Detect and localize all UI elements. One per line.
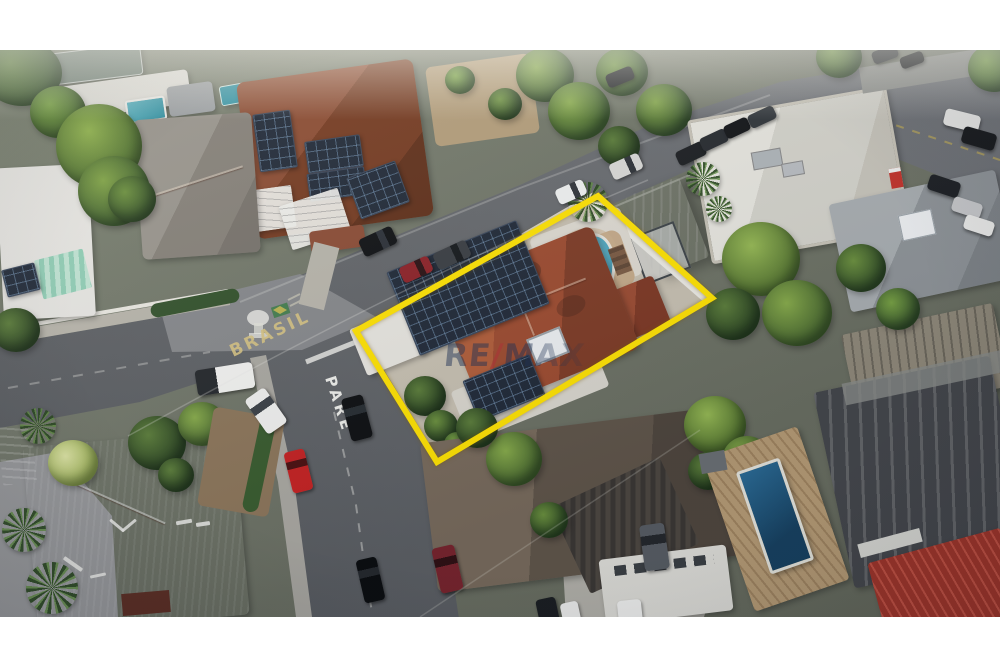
letterbox-bottom <box>0 617 1000 667</box>
power-line <box>420 430 700 617</box>
aerial-photo-stage: PARE BRASIL <box>0 0 1000 667</box>
highlight-overlay <box>0 50 1000 617</box>
property-highlight-outline <box>356 196 712 462</box>
watermark-text: MAX <box>501 338 587 374</box>
watermark-text: RE <box>442 338 493 374</box>
photo-area: PARE BRASIL <box>0 50 1000 617</box>
remax-watermark: RE/MAX <box>442 338 587 374</box>
power-line <box>128 180 648 436</box>
letterbox-top <box>0 0 1000 50</box>
